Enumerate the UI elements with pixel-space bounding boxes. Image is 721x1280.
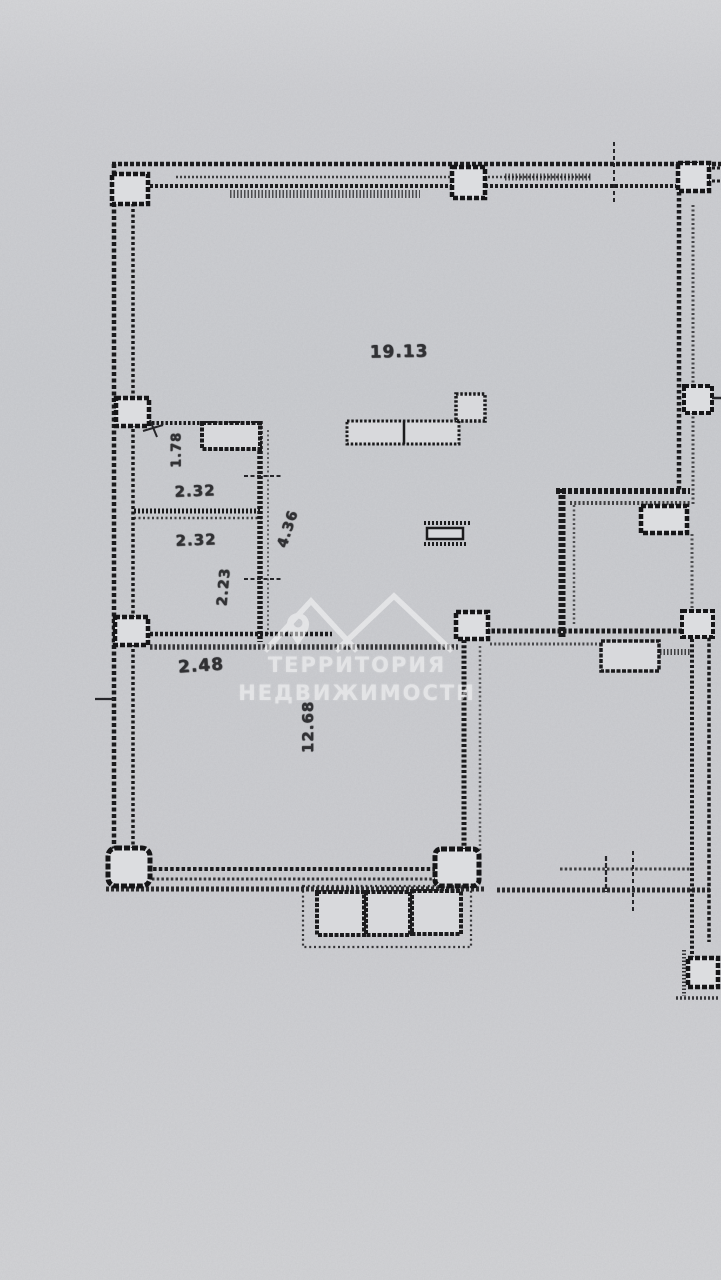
closet-cabinet [202, 423, 260, 449]
column-bottomroom-topright [682, 611, 713, 637]
column-hall-right [641, 506, 687, 533]
column-bottom-middle [435, 849, 479, 886]
dim-main-room: 19.13 [369, 341, 428, 362]
column-top-left [112, 174, 148, 204]
dim-opening-width: 2.48 [177, 654, 224, 677]
column-bottom-left [108, 848, 150, 886]
balcony-step-2 [366, 892, 410, 935]
dim-storage-depth: 2.23 [214, 567, 233, 607]
column-left-lower [115, 617, 148, 645]
column-left-mid [116, 398, 149, 426]
column-bottomroom-topleft [456, 612, 488, 639]
mainroom-box [456, 394, 485, 421]
scanned-floorplan-page: ТЕРРИТОРИЯ НЕДВИЖИМОСТИ 19.13 1.78 2.32 … [0, 0, 721, 1280]
dim-storage-width: 2.32 [175, 530, 217, 549]
column-top-right [678, 163, 709, 191]
radiator-body [427, 528, 463, 539]
dim-closet-depth: 1.78 [170, 432, 185, 468]
dim-closet-width: 2.32 [174, 481, 216, 500]
floorplan-drawing [0, 0, 721, 1280]
column-right-mid [684, 386, 712, 413]
bottom-room-door [601, 641, 659, 671]
balcony-step-1 [317, 892, 364, 935]
column-bottom-right [688, 958, 718, 987]
balcony-step-3 [412, 891, 461, 934]
column-top-middle [452, 167, 485, 198]
dim-lower-room: 12.68 [299, 701, 317, 753]
